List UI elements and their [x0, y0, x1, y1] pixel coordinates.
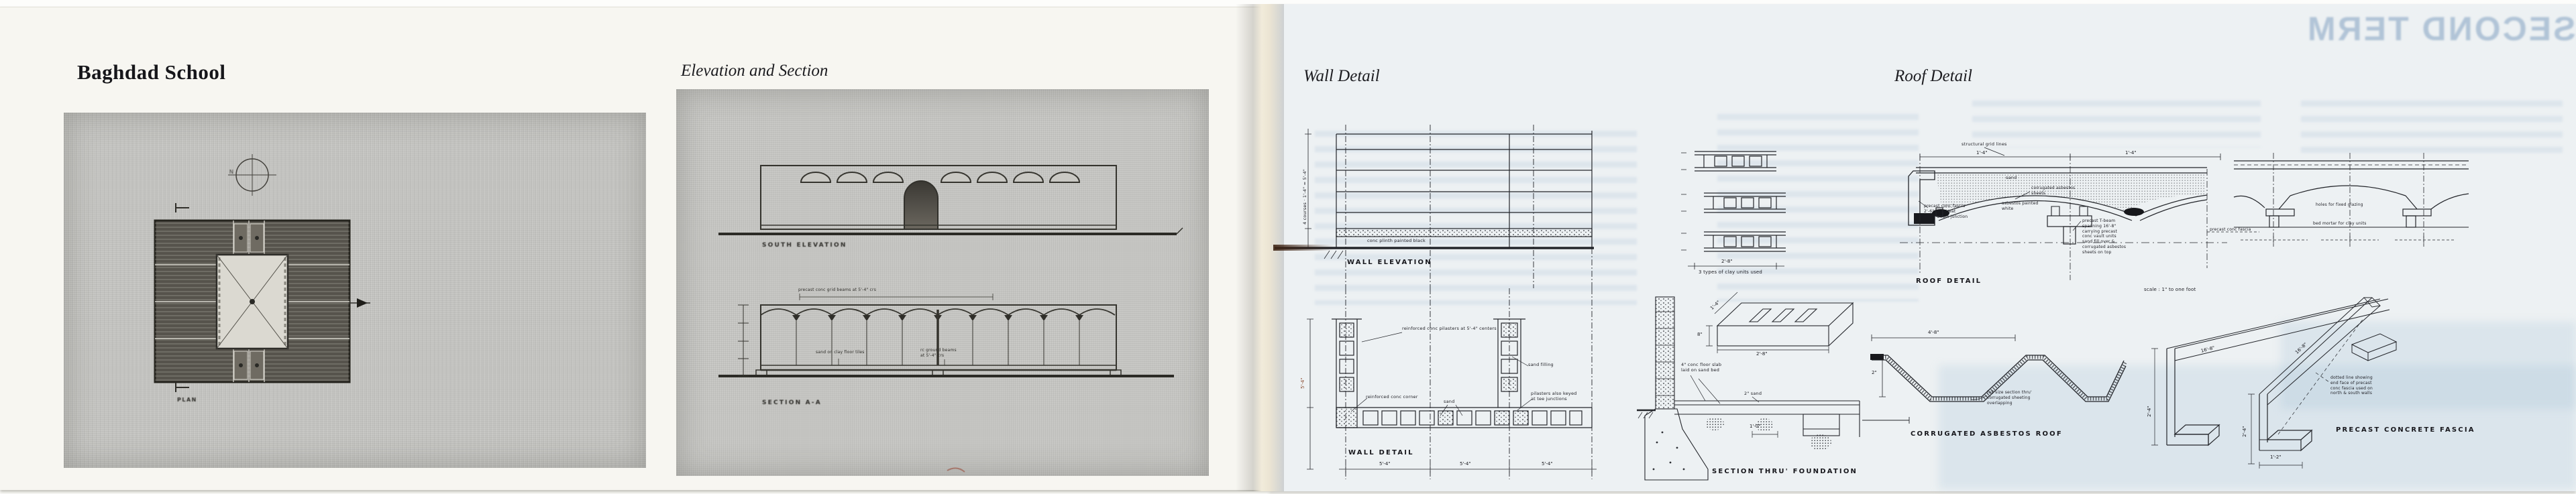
sheet-note: full size section thru' corrugated sheet…: [1987, 390, 2032, 406]
fascia-height-dim: 2'-4": [2147, 406, 2152, 417]
clay-units-drawing: [1681, 151, 1786, 269]
sand-filling-note: sand filling: [1528, 362, 1554, 367]
page-title: Baghdad School: [77, 60, 226, 84]
sand-bed-note: 2" sand: [1744, 391, 1762, 396]
painted-white-note: asbestos painted white: [2002, 201, 2039, 212]
roof-bay-dim: 1'-4": [1976, 150, 1988, 156]
grid-lines-note: structural grid lines: [1962, 141, 2007, 147]
pilaster-note: reinforced conc pilasters at 5'-4" cente…: [1402, 326, 1497, 331]
bay-dim: 5'-4": [1542, 461, 1553, 467]
wall-detail-caption: WALL DETAIL: [1348, 449, 1414, 456]
slab-note: 4" conc floor slab laid on sand bed: [1681, 362, 1721, 373]
wall-elevation-drawing: [1273, 125, 1594, 288]
fixed-glazing-note: holes for fixed glazing: [2316, 202, 2363, 208]
foundation-section-drawing: [1637, 292, 1909, 480]
roof-detail-caption: ROOF DETAIL: [1916, 277, 1982, 285]
keyed-note: pilasters also keyed at tee junctions: [1531, 391, 1577, 402]
fascia-height-dim: 2'-4": [2242, 426, 2247, 437]
t-beam-note: precast T-beam spanning 16'-8" carrying …: [2082, 219, 2126, 255]
section-caption: SECTION A-A: [762, 399, 822, 406]
bay-dim: 5'-4": [1460, 461, 1471, 467]
asbestos-sheets-note: corrugated asbestos sheets: [2031, 186, 2075, 196]
roof-underside-drawing: [2207, 153, 2469, 247]
fascia-base-dim: 1'-2": [2270, 454, 2282, 460]
corner-note: reinforced conc corner: [1366, 394, 1418, 399]
sand-fill-note: sand: [2006, 175, 2017, 180]
floor-plan-drawing: [64, 113, 646, 468]
sheet-depth-dim: 2": [1872, 370, 1877, 375]
dotted-line-note: dotted line showing end face of precast …: [2330, 375, 2373, 396]
foundation-caption: SECTION THRU' FOUNDATION: [1712, 468, 1858, 475]
clay-unit-width-dim: 2'-8": [1721, 259, 1733, 264]
fascia-junction-note: precast conc fascia 2'-6" lg to seat end…: [1924, 204, 1968, 219]
wall-plan-height-dim: 5'-4": [1300, 377, 1305, 389]
scale-note: scale : 1" to one foot: [2144, 287, 2196, 293]
clay-units-caption: 3 types of clay units used: [1699, 269, 1762, 275]
floor-note: rc ground beams at 5'-4" crs: [920, 348, 957, 359]
figure-title: Elevation and Section: [681, 62, 828, 80]
plan-caption: PLAN: [177, 397, 197, 403]
precast-fascia-caption: PRECAST CONCRETE FASCIA: [2336, 426, 2475, 434]
construction-details-drawing: [1265, 0, 2576, 494]
grid-note: precast conc grid beams at 5'-4" crs: [798, 288, 876, 293]
beam-dim: 1'-0": [1750, 424, 1761, 429]
clay-units-note: bed mortar for clay units: [2313, 221, 2367, 227]
fascia-leader-note: precast conc fascia: [2210, 227, 2251, 233]
floor-note: sand on clay floor tiles: [816, 350, 865, 355]
wall-height-dim: 4 courses · 1'-4" = 5'-4": [1302, 169, 1307, 225]
sheet-width-dim: 4'-8": [1928, 330, 1939, 335]
wall-elevation-caption: WALL ELEVATION: [1347, 259, 1432, 266]
north-label: N: [229, 169, 233, 175]
bay-dim: 5'-4": [1379, 461, 1391, 467]
roof-bay-dim: 1'-4": [2125, 150, 2137, 156]
corrugated-roof-caption: CORRUGATED ASBESTOS ROOF: [1911, 430, 2063, 438]
block-width-dim: 2'-8": [1756, 351, 1768, 357]
block-height-dim: 8": [1697, 332, 1703, 337]
south-elevation-caption: SOUTH ELEVATION: [762, 242, 847, 249]
plinth-note: conc plinth painted black: [1367, 238, 1426, 243]
elevation-section-drawing: [676, 89, 1209, 476]
book-spread-scan: SECOND TERM Baghdad School: [0, 0, 2576, 494]
sand-note: sand: [1444, 399, 1454, 404]
